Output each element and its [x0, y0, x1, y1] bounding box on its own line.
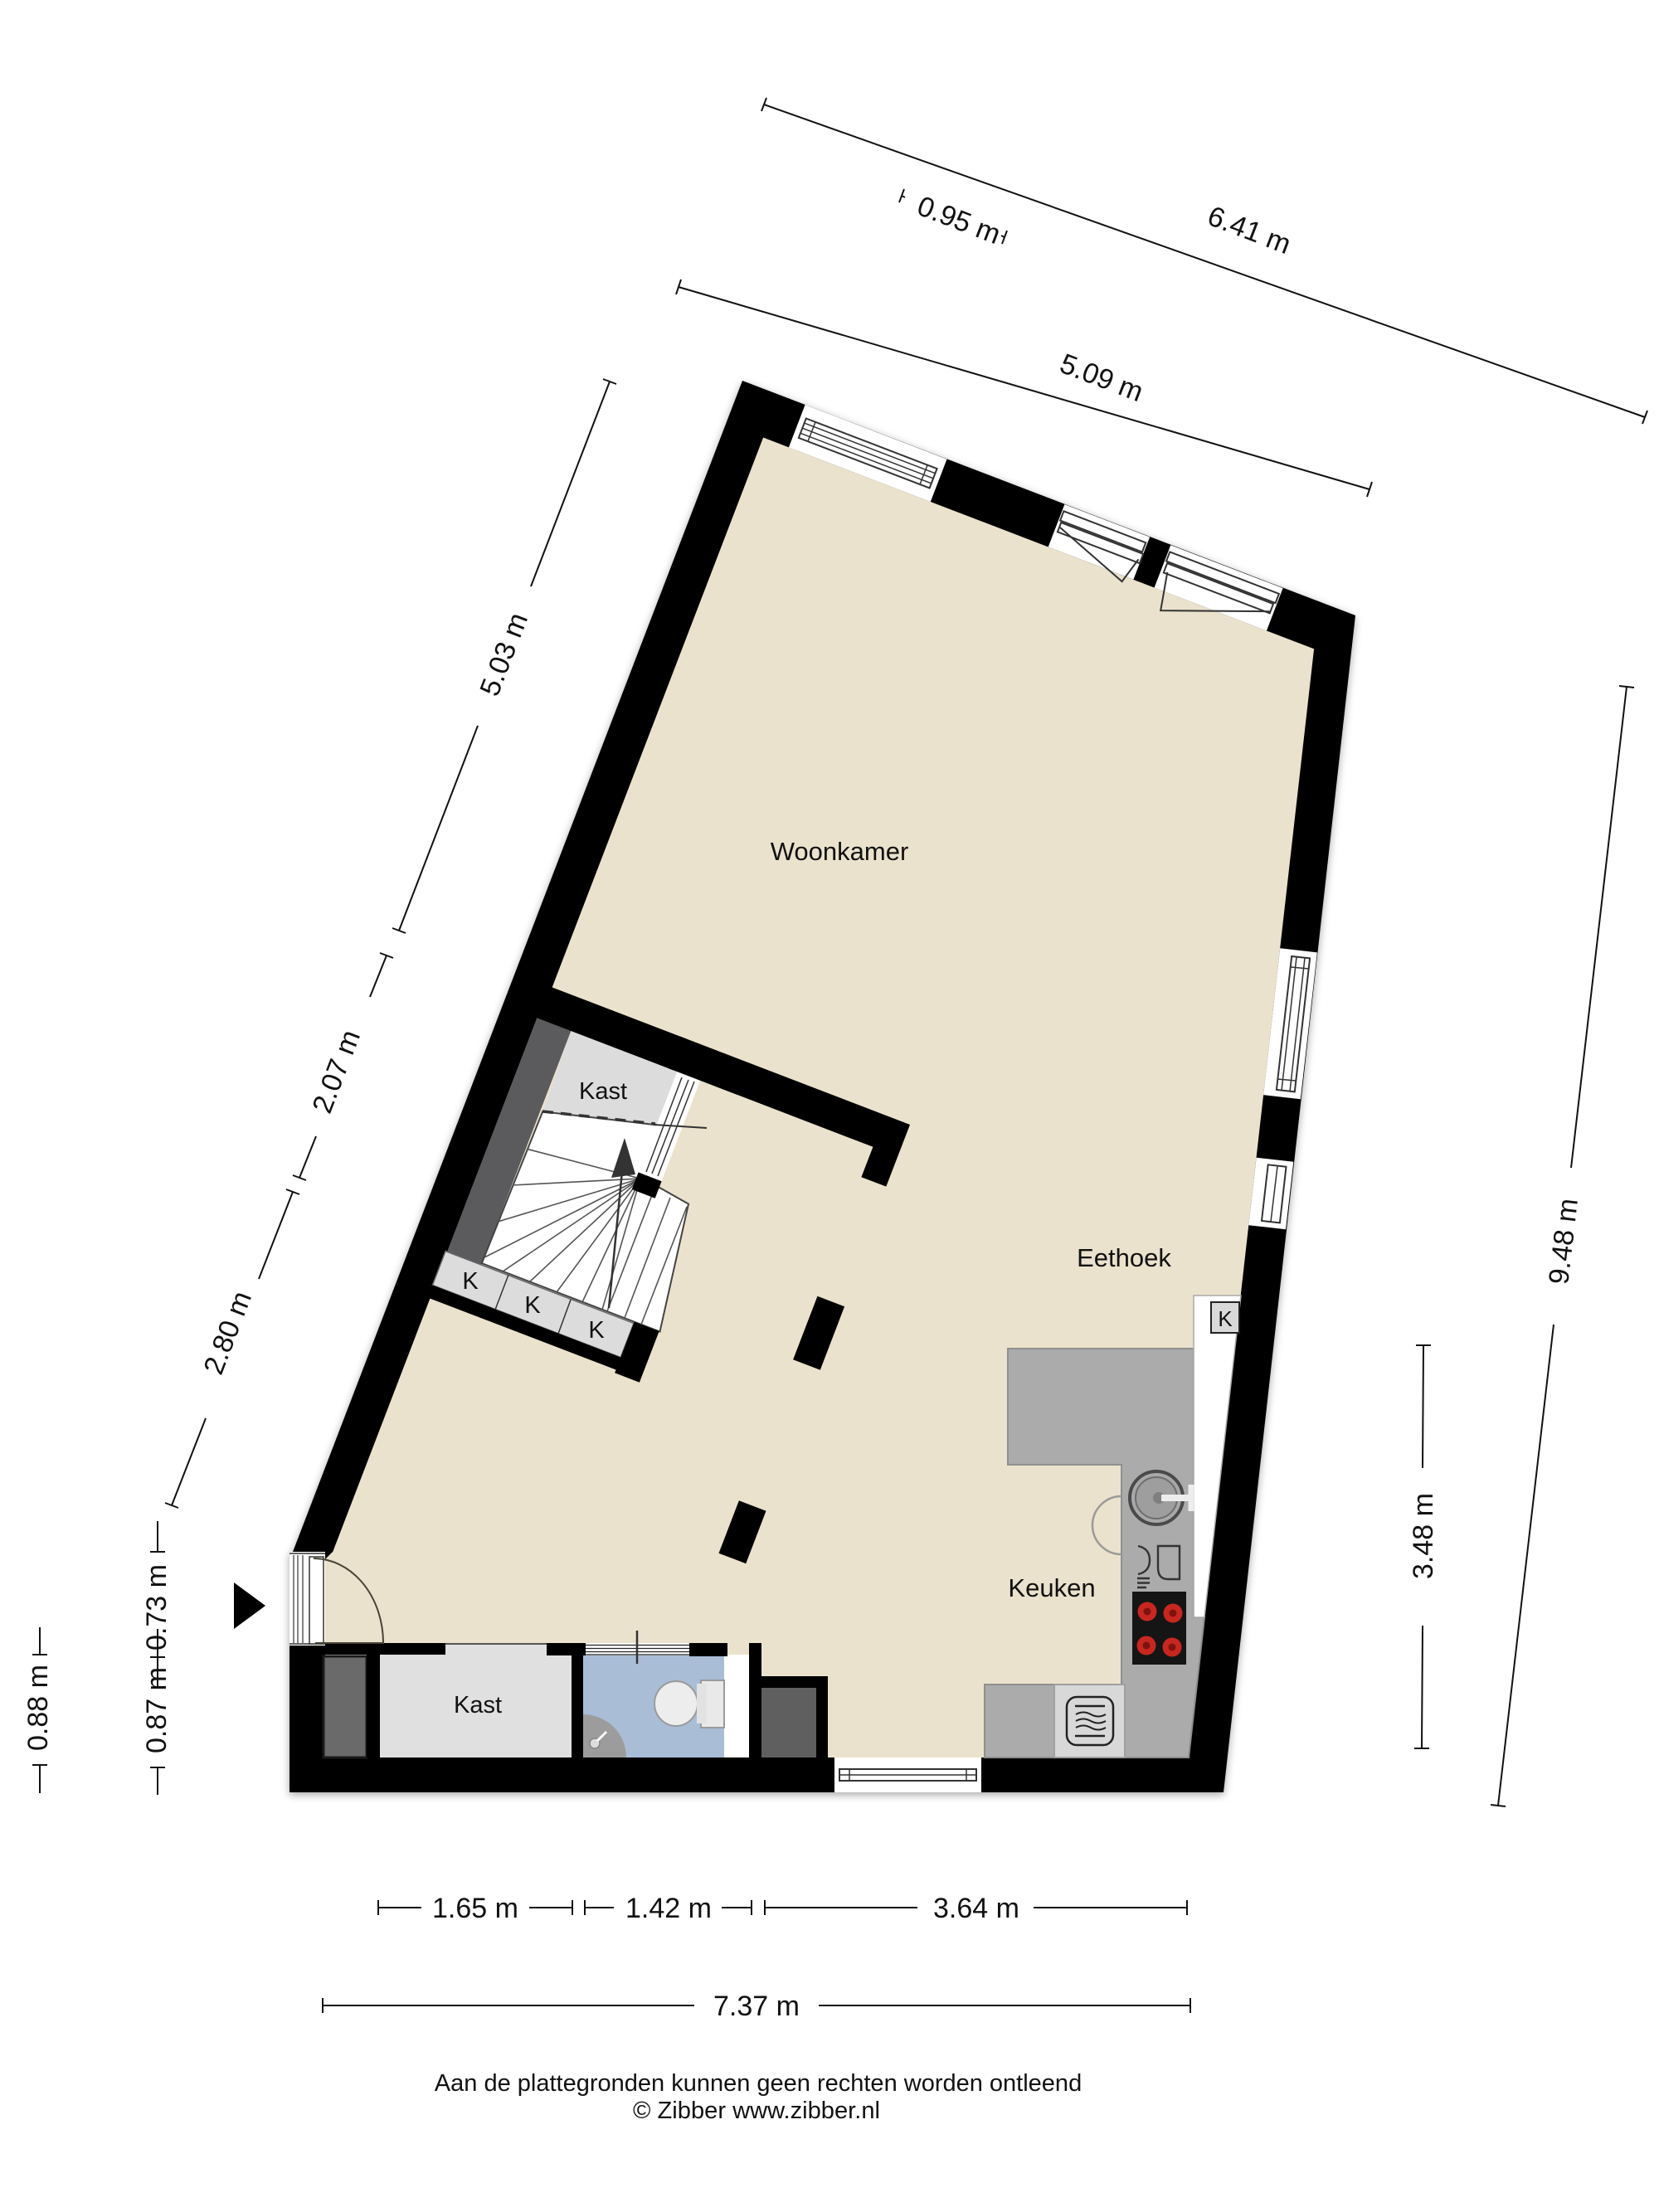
- svg-text:3.48 m: 3.48 m: [1408, 1493, 1439, 1579]
- svg-text:3.64 m: 3.64 m: [933, 1893, 1019, 1924]
- svg-text:Woonkamer: Woonkamer: [771, 837, 909, 866]
- svg-text:1.65 m: 1.65 m: [432, 1893, 518, 1924]
- svg-text:1.42 m: 1.42 m: [625, 1893, 712, 1924]
- svg-text:K: K: [524, 1292, 541, 1319]
- svg-text:0.95 m: 0.95 m: [913, 190, 1005, 250]
- svg-text:Kast: Kast: [454, 1692, 502, 1719]
- svg-text:2.80 m: 2.80 m: [197, 1287, 258, 1379]
- svg-text:K: K: [462, 1268, 479, 1295]
- svg-text:Kast: Kast: [579, 1078, 627, 1105]
- svg-text:Keuken: Keuken: [1008, 1573, 1095, 1602]
- svg-text:0.87 m: 0.87 m: [141, 1667, 173, 1753]
- svg-text:0.88 m: 0.88 m: [22, 1665, 54, 1751]
- svg-text:K: K: [1218, 1306, 1233, 1331]
- svg-text:5.09 m: 5.09 m: [1056, 348, 1148, 408]
- svg-text:Eethoek: Eethoek: [1077, 1243, 1171, 1272]
- svg-text:5.03 m: 5.03 m: [474, 609, 534, 701]
- svg-text:© Zibber www.zibber.nl: © Zibber www.zibber.nl: [633, 2098, 880, 2124]
- svg-text:9.48 m: 9.48 m: [1543, 1197, 1584, 1286]
- svg-text:K: K: [588, 1317, 605, 1344]
- svg-text:7.37 m: 7.37 m: [713, 1991, 800, 2022]
- svg-text:2.07 m: 2.07 m: [306, 1026, 367, 1118]
- svg-text:Aan de plattegronden kunnen ge: Aan de plattegronden kunnen geen rechten…: [435, 2070, 1082, 2097]
- svg-text:6.41 m: 6.41 m: [1204, 200, 1296, 260]
